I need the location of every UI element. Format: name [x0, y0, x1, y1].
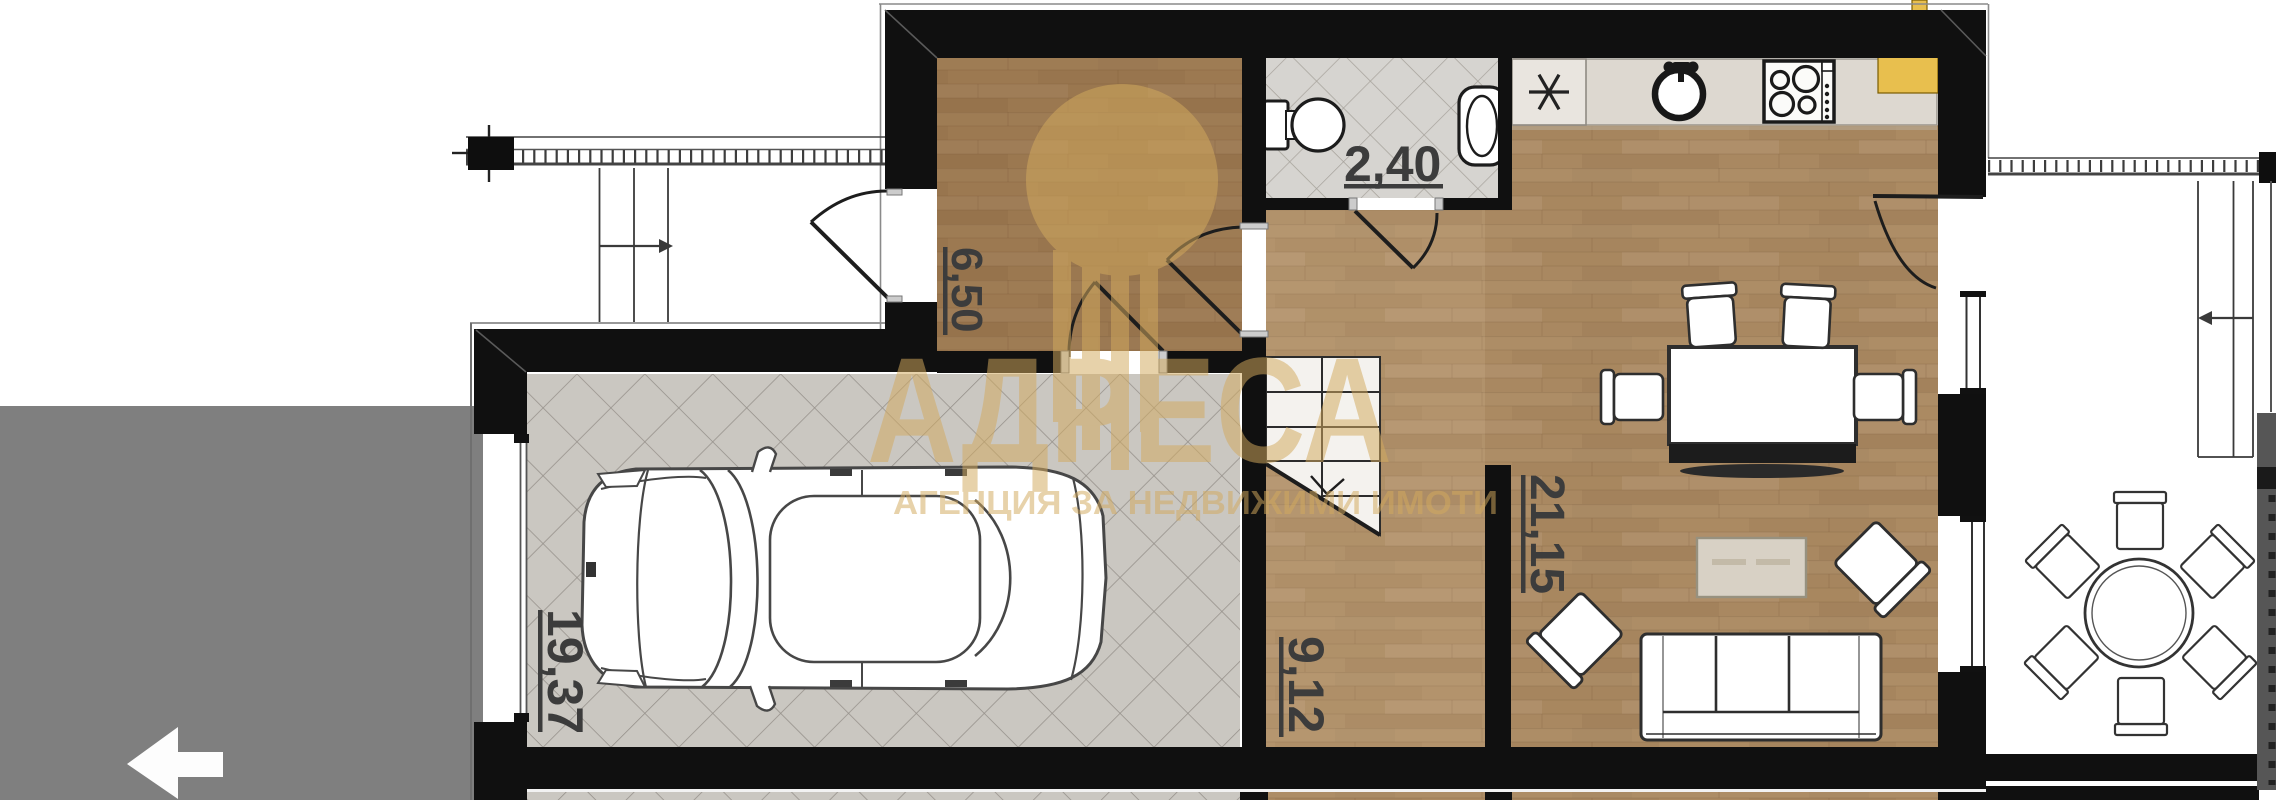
svg-text:6,50: 6,50 [942, 247, 991, 333]
svg-text:9,12: 9,12 [1278, 636, 1334, 733]
svg-text:2,40: 2,40 [1344, 136, 1441, 192]
svg-text:АГЕНЦИЯ ЗА НЕДВИЖИМИ ИМОТИ: АГЕНЦИЯ ЗА НЕДВИЖИМИ ИМОТИ [893, 484, 1498, 521]
svg-text:21,15: 21,15 [1520, 474, 1573, 594]
svg-text:АДРЕСА: АДРЕСА [867, 326, 1392, 494]
svg-text:19,37: 19,37 [537, 609, 593, 734]
